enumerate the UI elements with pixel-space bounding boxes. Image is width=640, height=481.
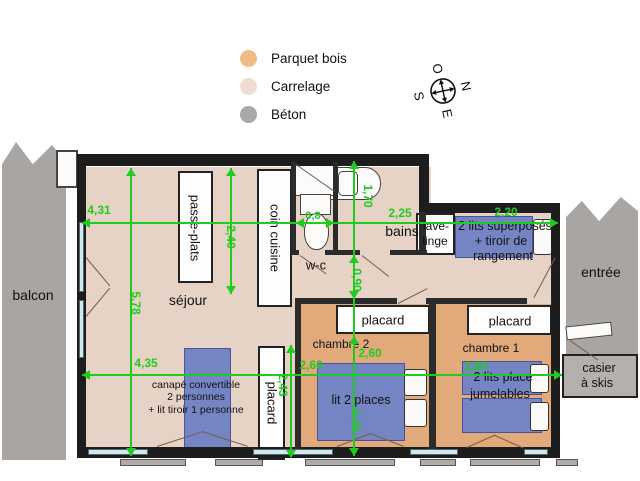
wall-wc-west — [291, 162, 296, 255]
compass-o: O — [429, 62, 446, 75]
dimension-arrow-icon — [326, 218, 334, 228]
dimension-arrow-icon — [550, 218, 558, 228]
label-placard-ch1: placard — [489, 314, 532, 329]
compass-n: N — [458, 80, 475, 92]
label-lits-superposes-2: + tiroir de — [475, 234, 527, 248]
dimline-2-43 — [290, 345, 292, 457]
window-sill-3 — [305, 459, 395, 466]
label-lave-linge-2: linge — [422, 234, 447, 248]
dim-0-8: 0,8 — [305, 210, 320, 222]
label-canape-1: canapé convertible — [152, 379, 240, 391]
window-sill-5 — [470, 459, 540, 466]
dim-2-43: 2,43 — [276, 373, 290, 396]
label-bains: bains — [385, 223, 418, 239]
dimension-arrow-icon — [226, 286, 236, 294]
dim-4-35: 4,35 — [134, 356, 157, 370]
label-entree: entrée — [581, 264, 621, 280]
dim-2-40: 2,40 — [224, 225, 238, 248]
label-canape-2: 2 personnes — [167, 391, 225, 403]
window-sill-1 — [120, 459, 186, 466]
wall-top — [77, 154, 429, 166]
window-left-1 — [79, 222, 84, 292]
dimension-arrow-icon — [349, 448, 359, 456]
dim-2-25: 2,25 — [388, 206, 411, 220]
door-gap-bath — [360, 250, 390, 255]
dim-2-20: 2,20 — [494, 205, 517, 219]
door-gap-wc — [299, 250, 325, 255]
dimension-arrow-icon — [286, 345, 296, 353]
wall-top-right — [419, 203, 560, 213]
dimline-top — [82, 222, 558, 224]
wall-right — [551, 203, 560, 458]
label-casier-2: à skis — [581, 376, 613, 390]
dim-0-90: 0,90 — [350, 268, 364, 291]
dimension-arrow-icon — [286, 450, 296, 458]
legend-label: Béton — [271, 107, 306, 122]
compass-s: S — [411, 90, 428, 102]
label-passe-plats: passe-plats — [188, 195, 203, 261]
wall-return-detail — [56, 150, 78, 188]
parquet-swatch-icon — [240, 50, 257, 67]
dimension-arrow-icon — [226, 168, 236, 176]
window-sill-6 — [556, 459, 578, 466]
label-wc: w-c — [306, 258, 326, 273]
label-balcon: balcon — [12, 287, 53, 303]
label-placard-ch2: placard — [362, 313, 405, 328]
dim-1-70: 1,70 — [361, 184, 375, 207]
dim-4-31: 4,31 — [87, 203, 110, 217]
dimension-arrow-icon — [349, 336, 359, 344]
compass-e: E — [439, 108, 456, 120]
floor-plan-page: Parquet bois Carrelage Béton N S E O — [0, 0, 640, 481]
carrelage-swatch-icon — [240, 78, 257, 95]
window-sill-4 — [420, 459, 456, 466]
window-bottom-1 — [88, 449, 148, 455]
legend: Parquet bois Carrelage Béton — [240, 44, 347, 128]
window-bottom-4 — [524, 449, 548, 455]
label-lit-2-places: lit 2 places — [331, 393, 390, 407]
dim-2-46: 2,46 — [349, 408, 363, 431]
label-lits-jumelables-2: jumelables — [470, 387, 530, 401]
wall-wc-east — [333, 162, 338, 255]
dim-5-78: 5,78 — [129, 291, 143, 314]
label-lits-superposes-3: rangement — [473, 249, 533, 263]
legend-item-beton: Béton — [240, 100, 347, 128]
beton-swatch-icon — [240, 106, 257, 123]
dimension-arrow-icon — [554, 370, 562, 380]
dimension-arrow-icon — [349, 255, 359, 263]
dimension-arrow-icon — [296, 218, 304, 228]
twin-bed-2-pillow — [530, 402, 549, 431]
dimension-arrow-icon — [349, 291, 359, 299]
dim-2-60-a: 2,60 — [299, 358, 322, 372]
label-coin-cuisine: coin cuisine — [268, 204, 283, 272]
dim-2-60-b: 2,60 — [358, 346, 381, 360]
legend-label: Parquet bois — [271, 51, 347, 66]
window-bottom-3 — [410, 449, 458, 455]
window-sill-2 — [215, 459, 263, 466]
dim-2-60-c: 2,60 — [464, 359, 487, 373]
dimension-arrow-icon — [126, 168, 136, 176]
dimension-arrow-icon — [82, 370, 90, 380]
compass-rose-icon: N S E O — [401, 49, 484, 132]
label-chambre-1: chambre 1 — [463, 341, 520, 355]
double-bed-pillow-2 — [404, 399, 427, 427]
bath-basin — [338, 171, 358, 196]
dimline-bottom — [82, 374, 562, 376]
legend-item-parquet: Parquet bois — [240, 44, 347, 72]
dimension-arrow-icon — [349, 161, 359, 169]
dimension-arrow-icon — [126, 448, 136, 456]
twin-bed-1-pillow — [530, 364, 549, 393]
label-casier-1: casier — [582, 361, 615, 375]
door-gap-bedroom1 — [527, 298, 551, 304]
label-sejour: séjour — [169, 292, 207, 308]
window-left-2 — [79, 300, 84, 358]
label-canape-3: + lit tiroir 1 personne — [148, 404, 243, 416]
legend-label: Carrelage — [271, 79, 330, 94]
legend-item-carrelage: Carrelage — [240, 72, 347, 100]
dimension-arrow-icon — [82, 218, 90, 228]
